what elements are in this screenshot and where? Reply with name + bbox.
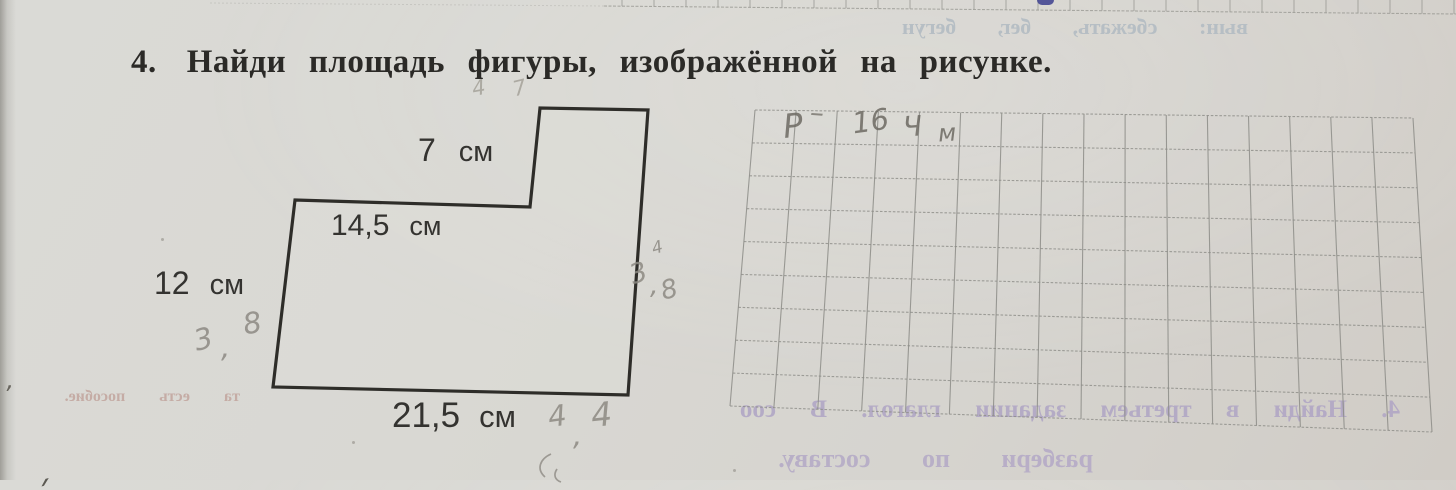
showthrough-text: разбери по составу. [703, 444, 1093, 474]
pencil-mark: , [573, 418, 582, 452]
grid-line-horizontal [736, 340, 1428, 362]
pencil-mark: 4 [546, 398, 569, 434]
dimension-value: 12 [154, 265, 190, 301]
grid-line-vertical [1413, 118, 1432, 432]
pencil-mark: – [809, 96, 825, 130]
blue-pen-mark [1037, 0, 1054, 5]
top-grid-baseline [604, 6, 1456, 14]
dimension-label-top: 7см [418, 132, 493, 169]
grid-line-vertical [862, 112, 879, 411]
pencil-mark: 8 [240, 305, 264, 342]
dimension-value: 21,5 [392, 396, 460, 435]
grid-line-horizontal [733, 373, 1430, 397]
grid-line-vertical [730, 110, 755, 406]
pencil-mark: ˏ [23, 446, 50, 489]
dimension-label-left: 12см [154, 265, 244, 302]
pencil-mark: м [937, 118, 957, 147]
pencil-mark: 4 [650, 237, 666, 259]
pencil-stroke [540, 454, 551, 477]
paper-speck [161, 238, 164, 241]
showthrough-text: та есть пособие. [50, 388, 240, 406]
paper-speck [733, 469, 736, 472]
pencil-stroke [555, 469, 561, 482]
grid-line-horizontal [730, 406, 1432, 432]
grid-line-horizontal [747, 209, 1420, 223]
grid-line-vertical [1037, 114, 1043, 418]
dimension-unit: см [409, 211, 441, 241]
grid-line-vertical [1081, 114, 1084, 419]
dimension-label-step: 14,5см [331, 209, 441, 243]
grid-line-horizontal [755, 110, 1413, 118]
dimension-unit: см [210, 269, 244, 301]
dimension-value: 14,5 [331, 209, 389, 242]
pencil-mark: 3 [626, 256, 652, 291]
pencil-mark: , [221, 330, 230, 364]
grid-line-vertical [1166, 115, 1169, 422]
pencil-mark: 8 [657, 273, 681, 306]
grid-line-vertical [906, 112, 920, 413]
grid-line-horizontal [744, 242, 1422, 258]
pencil-mark: 16 [850, 102, 891, 141]
grid-line-vertical [774, 111, 796, 408]
dimension-unit: см [459, 136, 493, 168]
dimension-value: 7 [418, 132, 436, 168]
grid-line-horizontal [749, 176, 1417, 188]
grid-line-vertical [1331, 117, 1345, 429]
page-edge-shadow [0, 0, 16, 480]
grid-line-vertical [1249, 116, 1257, 426]
pencil-mark: , [650, 270, 659, 301]
paper-speck [352, 441, 355, 444]
grid-line-vertical [1372, 118, 1388, 431]
showthrough-text: вын: сбежать, бег, бегун [838, 14, 1248, 40]
pencil-mark: Ч [902, 109, 923, 143]
problem-title-text: Найди площадь фигуры, изображённой на ри… [187, 44, 1052, 80]
top-grid-baseline-faint [210, 3, 604, 6]
grid-line-horizontal [752, 143, 1415, 153]
grid-line-vertical [993, 113, 1002, 416]
problem-number: 4. [131, 44, 157, 80]
grid-line-vertical [949, 113, 960, 415]
grid-line-horizontal [738, 307, 1425, 327]
grid-line-vertical [818, 111, 838, 409]
dimension-label-bottom: 21,5см [392, 396, 516, 436]
grid-line-vertical [1207, 116, 1212, 424]
grid-line-vertical [1290, 117, 1301, 428]
pencil-mark: 3 [190, 320, 216, 357]
showthrough-text: 4. Найди в третьем задании глагол. В соо [628, 396, 1400, 424]
dimension-unit: см [479, 399, 516, 434]
pencil-mark: Р [781, 105, 805, 146]
grid-line-horizontal [741, 274, 1423, 292]
pencil-mark: 4 [589, 394, 614, 435]
problem-title: 4.Найди площадь фигуры, изображённой на … [131, 44, 1171, 81]
